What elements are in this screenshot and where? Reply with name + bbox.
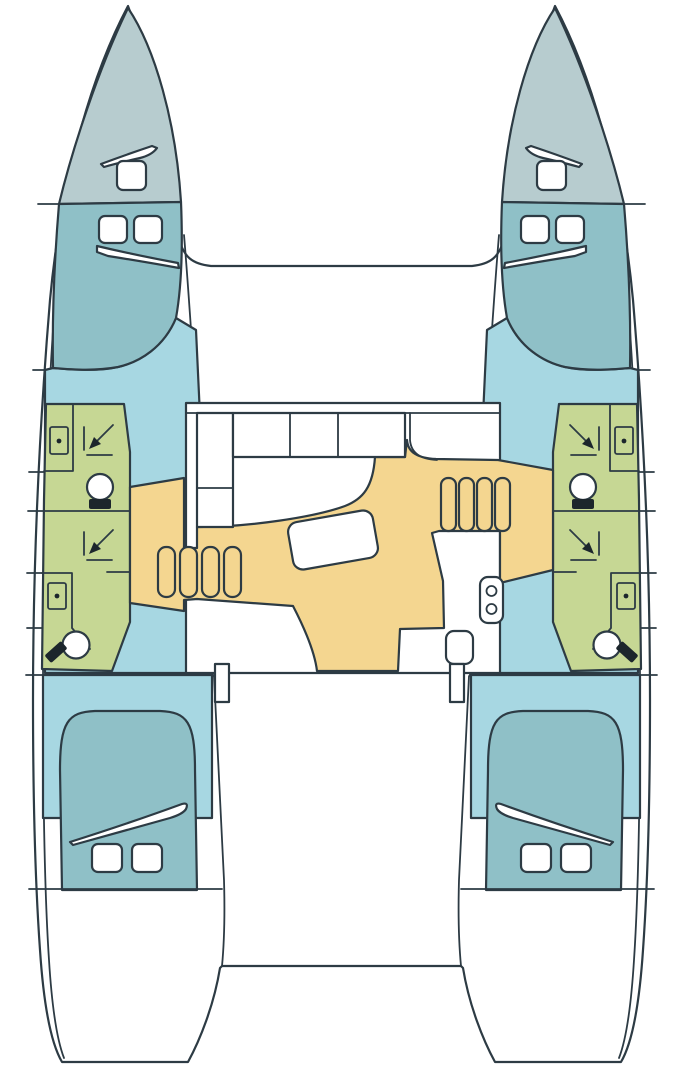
stove-icon	[480, 577, 503, 623]
floor-plan-svg	[0, 0, 683, 1080]
cockpit-door-post-port	[215, 664, 229, 702]
aft-cabin-hatch-right	[132, 844, 162, 872]
settee-back-bench	[233, 413, 405, 457]
aft-cabin-hatch-left	[92, 844, 122, 872]
bathroom-block	[42, 404, 130, 671]
settee-side-bench	[197, 413, 233, 527]
cockpit-door-post-starboard	[450, 664, 464, 702]
aft-cabin-bed	[60, 711, 197, 890]
forward-cabin-window-right	[134, 216, 162, 243]
catamaran-floor-plan	[0, 0, 683, 1080]
forward-cabin-window-left	[99, 216, 127, 243]
saloon	[130, 403, 553, 702]
bow-hatch	[117, 161, 146, 190]
toilet-icon	[87, 474, 113, 509]
galley-sink-icon	[446, 631, 473, 664]
